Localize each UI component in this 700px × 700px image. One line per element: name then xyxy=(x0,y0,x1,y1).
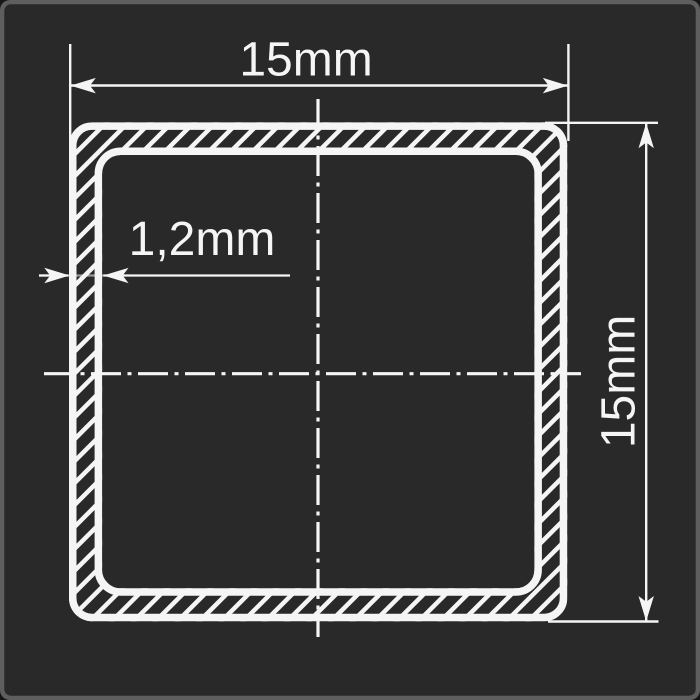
svg-text:15mm: 15mm xyxy=(593,315,646,448)
svg-text:15mm: 15mm xyxy=(239,34,372,87)
svg-text:1,2mm: 1,2mm xyxy=(129,213,276,266)
